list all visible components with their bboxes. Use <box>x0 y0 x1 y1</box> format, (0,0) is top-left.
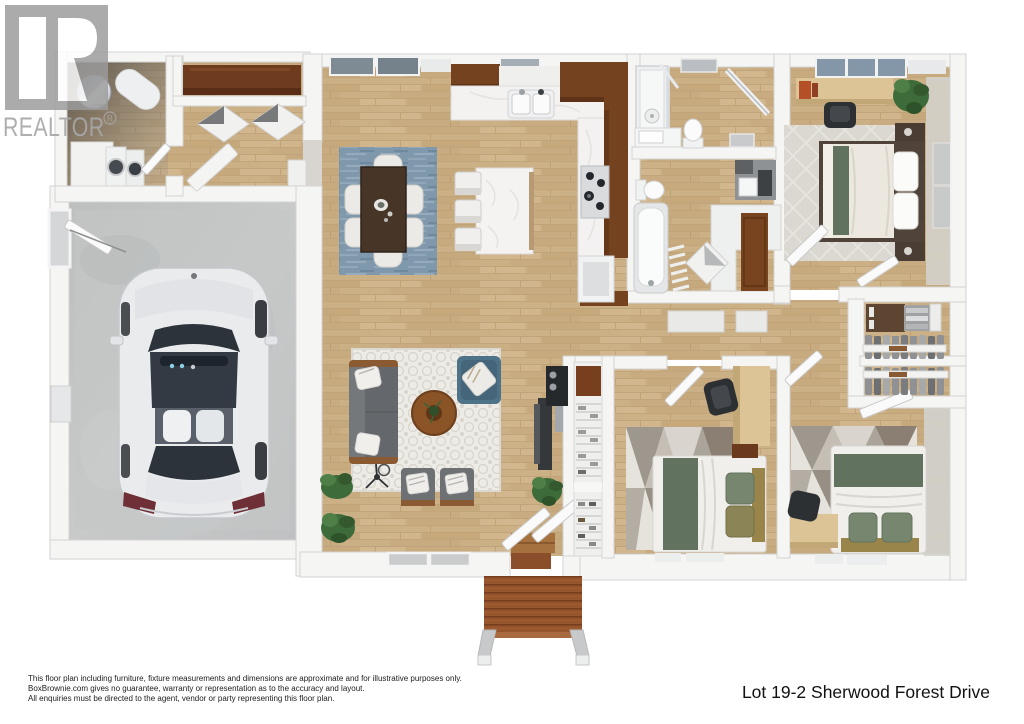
svg-text:BoxBrownie.com gives no guaran: BoxBrownie.com gives no guarantee, warra… <box>28 684 365 693</box>
svg-text:This floor plan including furn: This floor plan including furniture, fix… <box>28 674 462 683</box>
svg-text:Lot 19-2 Sherwood Forest Drive: Lot 19-2 Sherwood Forest Drive <box>742 682 990 702</box>
svg-text:R: R <box>107 114 113 123</box>
svg-text:All enquiries must be directed: All enquiries must be directed to the ag… <box>28 694 334 703</box>
svg-text:REALTOR: REALTOR <box>3 113 105 143</box>
